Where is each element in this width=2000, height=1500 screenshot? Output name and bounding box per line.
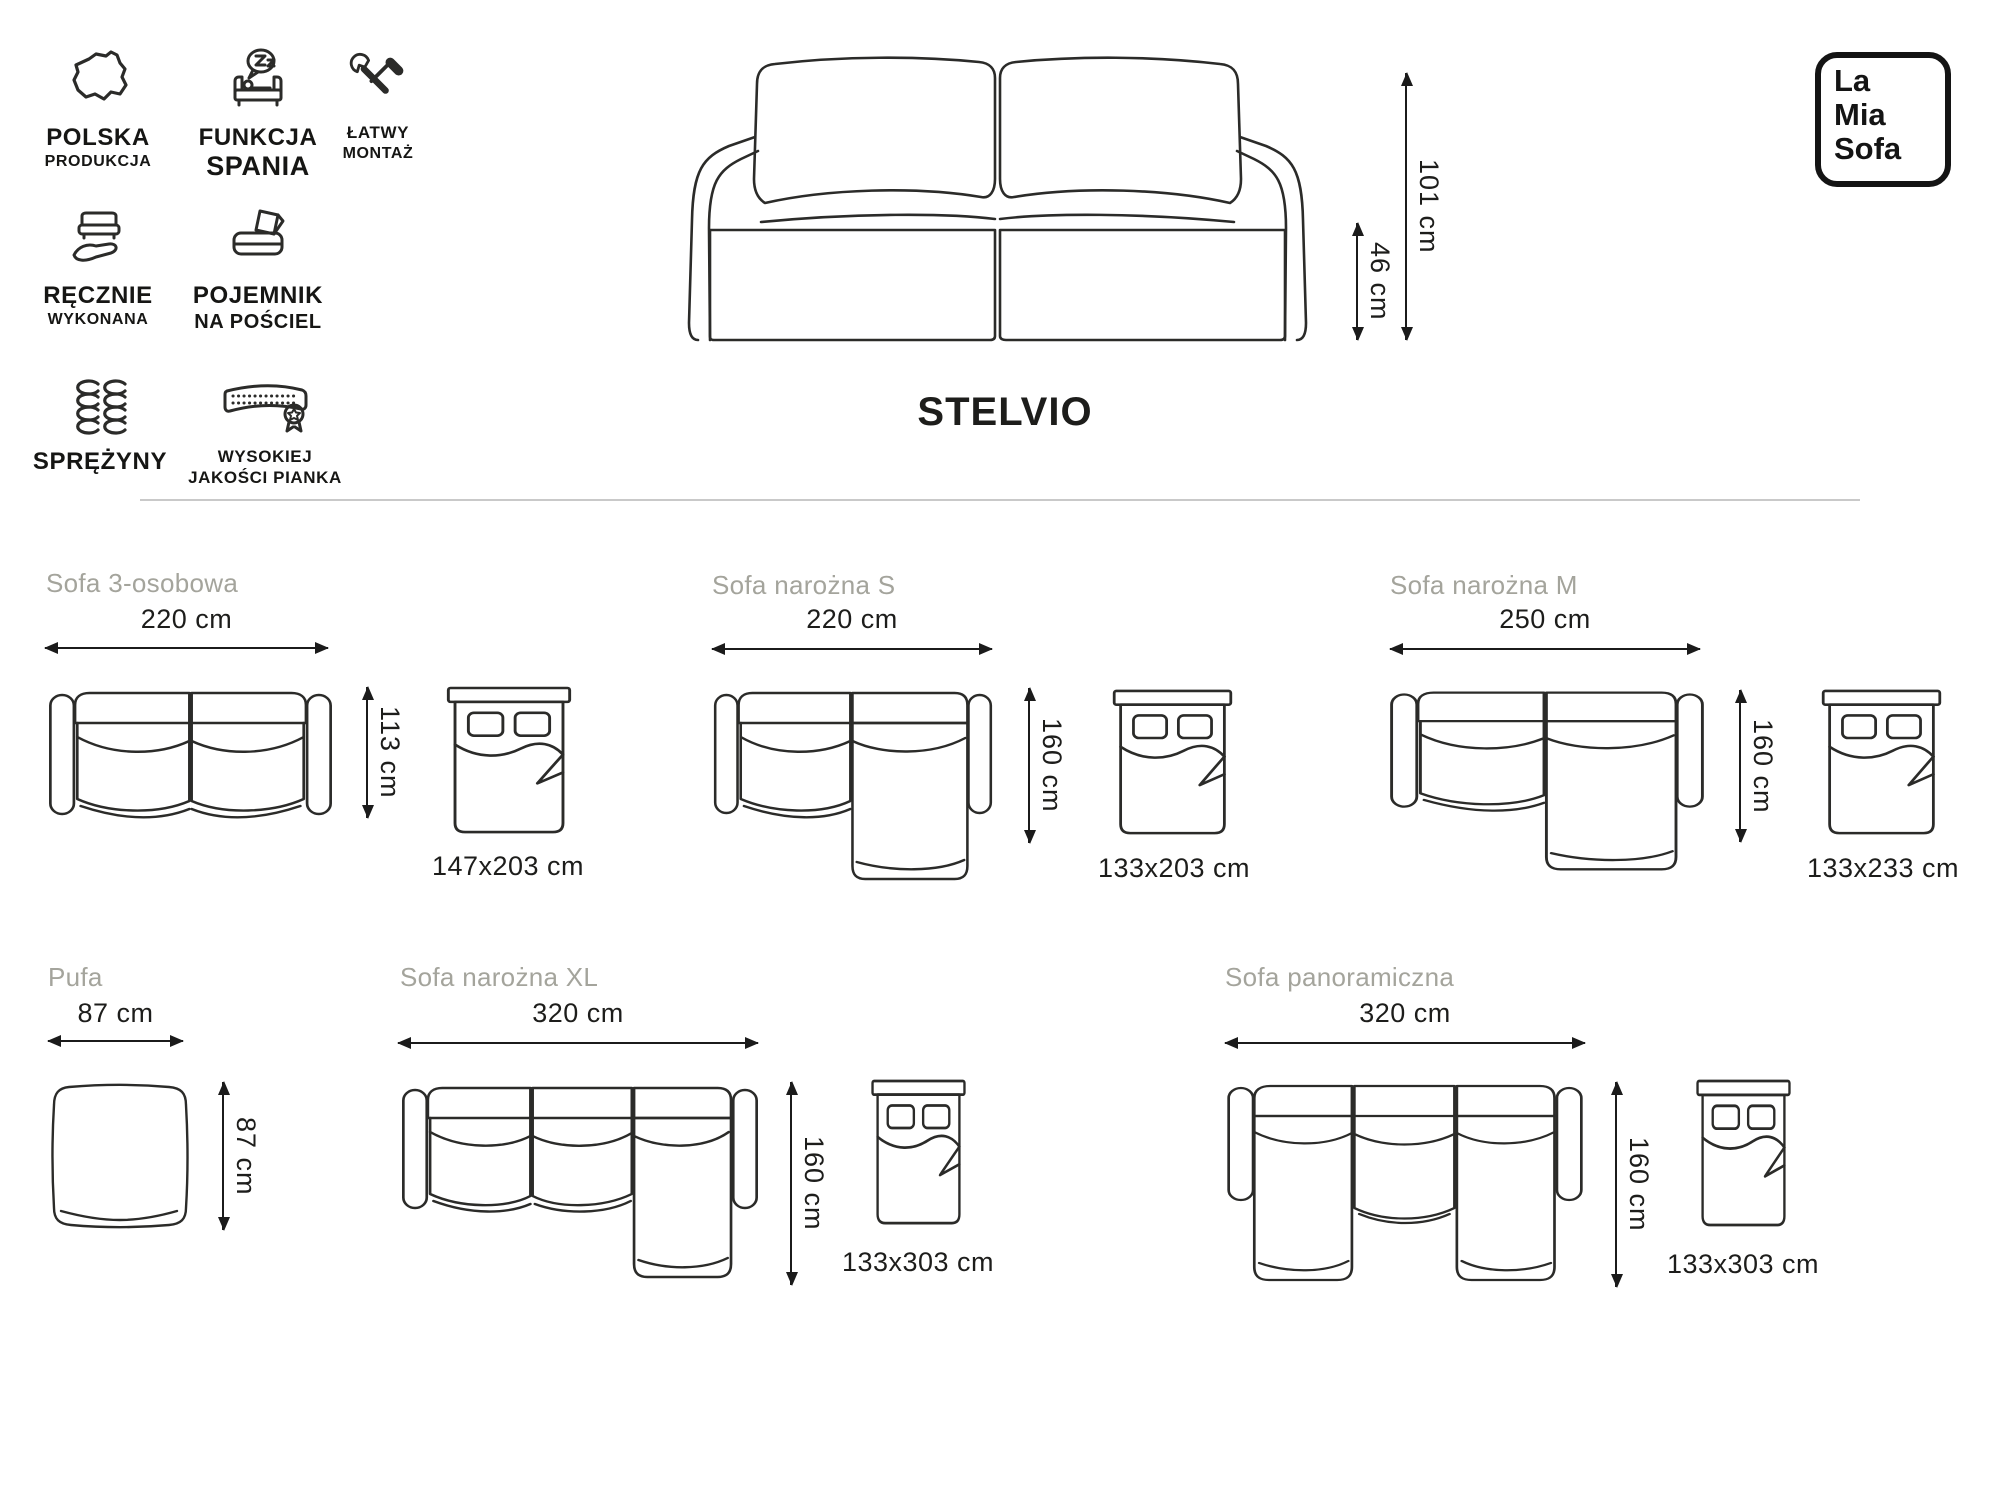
bed-size-label: 133x303 cm [1663, 1249, 1823, 1280]
width-arrow [1225, 1042, 1585, 1044]
depth-label: 87 cm [230, 1082, 261, 1230]
width-arrow [48, 1040, 183, 1042]
feature-sublabel: JAKOŚCI PIANKA [188, 468, 342, 489]
depth-label: 113 cm [374, 687, 405, 818]
width-label: 250 cm [1390, 604, 1700, 635]
width-label: 87 cm [48, 998, 183, 1029]
feature-recznie-wykonana: RĘCZNIE WYKONANA [33, 196, 163, 330]
foam-icon [217, 372, 314, 438]
variant-title: Sofa 3-osobowa [46, 568, 238, 599]
sofa-top-view [400, 1080, 760, 1283]
brand-logo: La Mia Sofa [1815, 52, 1951, 187]
depth-arrow [1739, 690, 1741, 842]
variant-title: Sofa narożna XL [400, 962, 598, 993]
springs-icon [67, 372, 133, 438]
depth-arrow [1615, 1082, 1617, 1287]
product-name: STELVIO [855, 390, 1155, 435]
bed-size-label: 133x203 cm [1084, 853, 1264, 884]
seat-height-label: 46 cm [1364, 223, 1395, 340]
width-label: 320 cm [1225, 998, 1585, 1029]
variant-title: Sofa narożna M [1390, 570, 1578, 601]
bed-icon [1820, 688, 1943, 838]
bed-size-label: 147x203 cm [418, 851, 598, 882]
sofa-top-view [1388, 685, 1706, 875]
feature-sprezyny: SPRĘŻYNY [30, 372, 170, 476]
feature-polska-produkcja: POLSKA PRODUKCJA [33, 40, 163, 172]
bed-icon [1111, 688, 1234, 838]
sofa-top-view [1225, 1080, 1585, 1287]
easy-assembly-icon [347, 44, 409, 114]
variant-title: Pufa [48, 962, 103, 993]
width-label: 320 cm [398, 998, 758, 1029]
depth-arrow [1028, 688, 1030, 843]
feature-label: POLSKA [46, 123, 150, 152]
section-divider [140, 499, 1860, 501]
width-arrow [1390, 648, 1700, 650]
pouf-top-view [47, 1080, 191, 1232]
feature-latwy-montaz: ŁATWY MONTAŻ [313, 44, 443, 163]
feature-sublabel: WYKONANA [48, 310, 149, 330]
depth-arrow [366, 687, 368, 818]
variant-title: Sofa narożna S [712, 570, 895, 601]
brand-logo-line: Mia [1834, 98, 1945, 132]
bed-size-label: 133x233 cm [1793, 853, 1973, 884]
poland-map-icon [65, 40, 131, 114]
feature-sublabel: MONTAŻ [343, 144, 414, 164]
bedding-storage-icon [225, 196, 291, 272]
seat-height-arrow [1356, 223, 1358, 340]
feature-label: RĘCZNIE [43, 281, 153, 310]
handmade-icon [65, 196, 131, 272]
feature-sublabel: PRODUKCJA [45, 152, 152, 172]
feature-pojemnik-na-posciel: POJEMNIK NA POŚCIEL [173, 196, 343, 335]
width-label: 220 cm [45, 604, 328, 635]
variant-title: Sofa panoramiczna [1225, 962, 1454, 993]
bed-icon [1695, 1078, 1792, 1230]
feature-label: POJEMNIK [193, 281, 323, 310]
feature-sublabel: SPANIA [206, 152, 310, 180]
depth-label: 160 cm [1747, 690, 1778, 842]
feature-wysokiej-jakosci-pianka: WYSOKIEJ JAKOŚCI PIANKA [170, 372, 360, 488]
feature-funkcja-spania: FUNKCJA SPANIA [183, 40, 333, 181]
depth-label: 160 cm [1623, 1082, 1654, 1287]
depth-arrow [790, 1082, 792, 1285]
depth-label: 160 cm [1036, 688, 1067, 843]
brand-logo-line: Sofa [1834, 132, 1945, 166]
feature-label: SPRĘŻYNY [33, 447, 167, 476]
brand-logo-line: La [1834, 64, 1945, 98]
feature-label: WYSOKIEJ [218, 447, 313, 468]
bed-size-label: 133x303 cm [838, 1247, 998, 1278]
feature-label: ŁATWY [347, 123, 409, 144]
sofa-top-view [712, 685, 994, 885]
feature-label: FUNKCJA [199, 123, 318, 152]
height-arrow [1405, 73, 1407, 340]
depth-arrow [222, 1082, 224, 1230]
width-arrow [398, 1042, 758, 1044]
depth-label: 160 cm [798, 1082, 829, 1285]
product-spec-sheet: POLSKA PRODUKCJA FUNKCJA SPANIA [0, 0, 2000, 1500]
feature-sublabel: NA POŚCIEL [194, 310, 322, 334]
sofa-top-view [47, 685, 334, 825]
width-arrow [45, 647, 328, 649]
height-label: 101 cm [1413, 73, 1444, 340]
width-arrow [712, 648, 992, 650]
bed-icon [445, 685, 573, 837]
bed-icon [870, 1078, 967, 1228]
width-label: 220 cm [712, 604, 992, 635]
sofa-front-view [665, 40, 1330, 345]
sleep-function-icon [225, 40, 291, 114]
